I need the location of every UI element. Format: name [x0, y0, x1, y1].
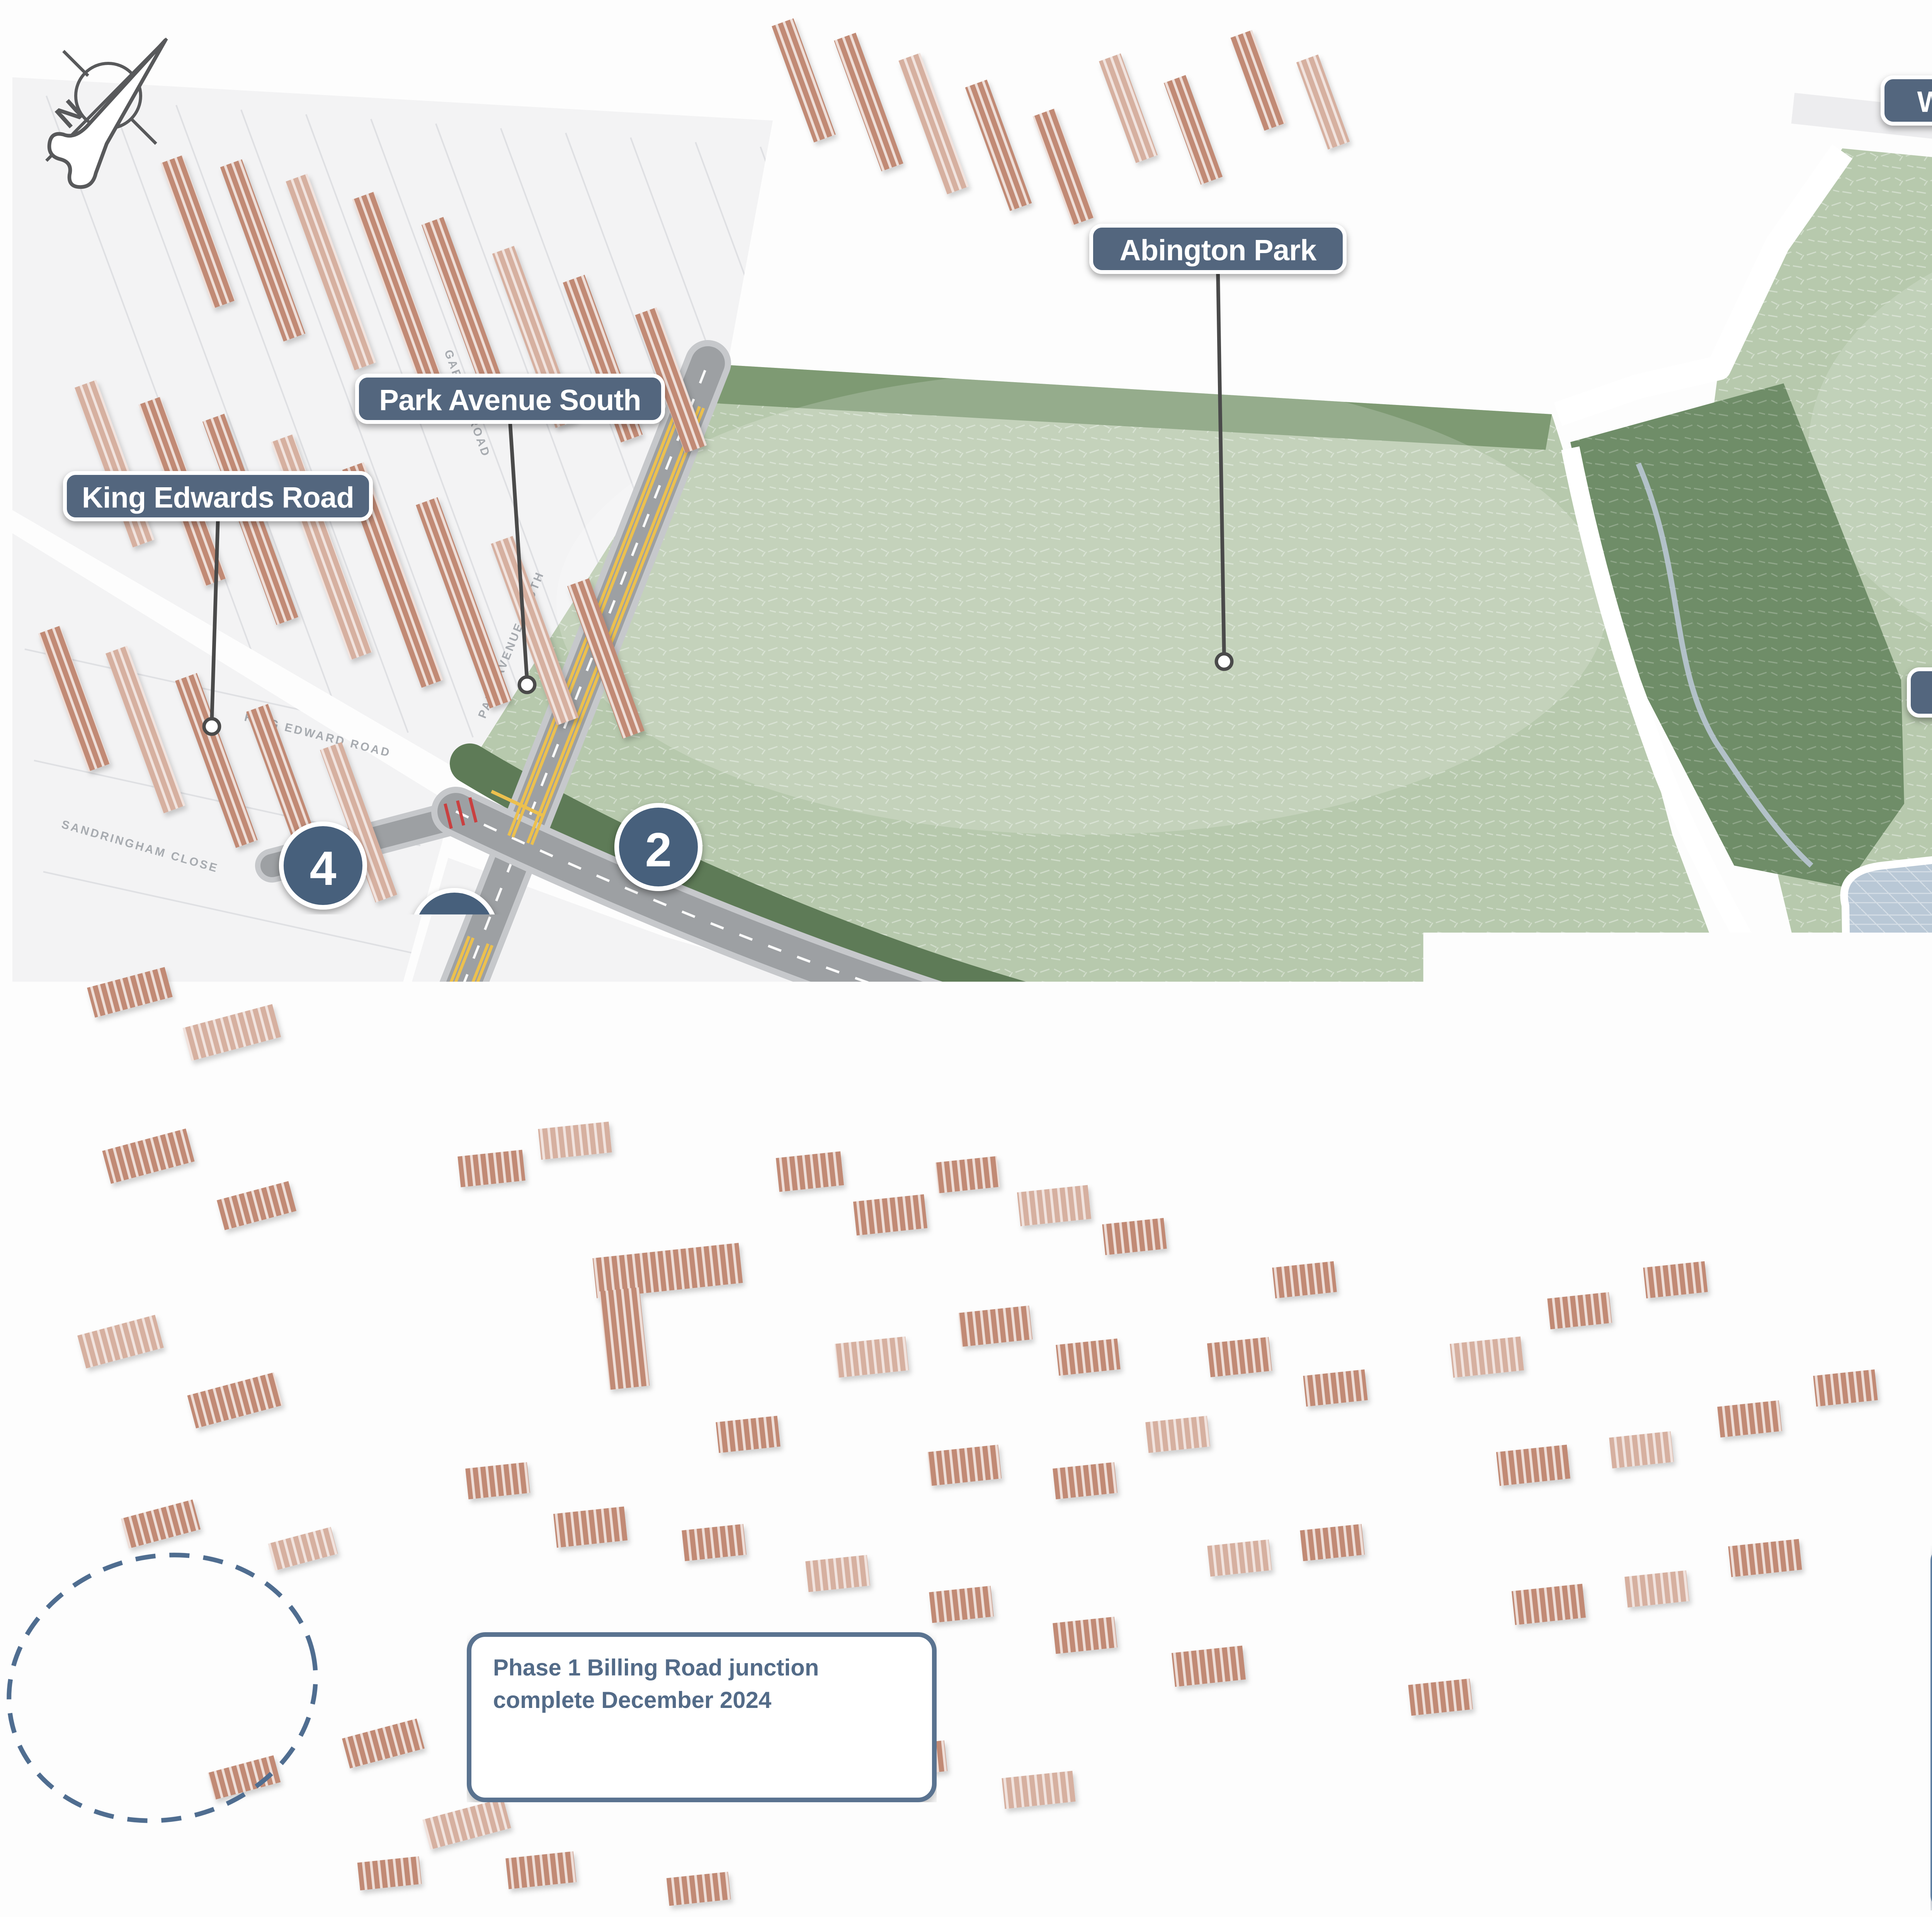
tree-icon — [1419, 1048, 1462, 1091]
building — [1303, 1369, 1367, 1407]
tree-icon — [1533, 1070, 1570, 1107]
leader-dot — [403, 1284, 419, 1300]
svg-text:King Edwards Road: King Edwards Road — [82, 481, 354, 514]
phase1-note-text: Phase 1 Billing Road junction complete D… — [493, 1655, 819, 1714]
marker-2-mid: 2 — [1334, 1002, 1417, 1085]
building — [1300, 1524, 1364, 1561]
label-park-avenue-south-bottom: Park Avenue South — [236, 1454, 543, 1501]
leader-dot — [1216, 654, 1232, 669]
building — [929, 1586, 993, 1623]
legend-box: 1.Improved and safer Toucan crossing for… — [1930, 1546, 1932, 1910]
building — [1053, 1617, 1117, 1654]
building — [1145, 1416, 1210, 1453]
building — [1408, 1679, 1473, 1716]
tree-icon — [750, 853, 796, 900]
building — [776, 1151, 844, 1192]
marker-4-west: 4 — [281, 824, 365, 907]
building — [1207, 1539, 1272, 1577]
marker-3-southwest: 3 — [170, 1196, 253, 1280]
tree-icon — [584, 785, 628, 828]
tree-icon — [1148, 992, 1176, 1020]
tree-icon — [474, 736, 515, 776]
leader-dot — [204, 719, 219, 734]
label-park-avenue-south-top: Park Avenue South — [357, 376, 663, 422]
leader-dot — [519, 677, 535, 692]
building — [1056, 1339, 1120, 1376]
svg-text:Abington Park: Abington Park — [1120, 234, 1317, 267]
marker-2-west: 2 — [617, 805, 700, 889]
svg-text:2: 2 — [1362, 1020, 1389, 1073]
marker-4-landcross: 4 — [1306, 1121, 1389, 1204]
marker-1-east: 1 — [1818, 1022, 1901, 1105]
label-king-edwards-road: King Edwards Road — [65, 473, 371, 519]
building — [1717, 1400, 1782, 1437]
tree-icon — [1195, 997, 1241, 1043]
building — [1547, 1292, 1612, 1329]
svg-text:Abington Park Crescent: Abington Park Crescent — [709, 1288, 1037, 1321]
svg-text:Wellingborough Road: Wellingborough Road — [1917, 86, 1932, 119]
building — [1624, 1570, 1689, 1607]
building — [805, 1555, 870, 1592]
tree-icon — [1258, 1019, 1289, 1050]
svg-text:1: 1 — [1846, 1040, 1873, 1093]
tree-icon — [1482, 1065, 1510, 1093]
svg-text:4: 4 — [1335, 1139, 1361, 1192]
tree-icon — [249, 1705, 280, 1736]
svg-text:3: 3 — [1067, 944, 1094, 997]
leader-dot — [175, 1699, 190, 1714]
tree-icon — [1411, 1173, 1442, 1204]
building — [1813, 1369, 1878, 1407]
tree-icon — [1866, 1101, 1906, 1141]
phase1-note-box: Phase 1 Billing Road junction complete D… — [467, 1632, 937, 1802]
marker-3-mid: 3 — [1039, 926, 1122, 1009]
svg-text:1: 1 — [441, 908, 468, 962]
marker-1-west: 1 — [413, 890, 496, 974]
park-highlight-west — [556, 371, 1607, 835]
tree-icon — [1697, 1088, 1740, 1131]
tree-icon — [1074, 388, 1090, 403]
svg-text:Park Avenue South: Park Avenue South — [379, 384, 641, 417]
label-bridgewater-drive: Bridgewater Drive — [1909, 669, 1932, 716]
tree-icon — [699, 836, 736, 873]
tree-icon — [1757, 1097, 1791, 1131]
tree-icon — [864, 898, 904, 938]
map-canvas: GARRICK ROAD KING EDWARD ROAD SANDRINGHA… — [0, 0, 1932, 1917]
tree-icon — [1811, 1099, 1849, 1136]
building — [1272, 1261, 1337, 1298]
tree-icon — [974, 935, 1017, 978]
svg-text:2: 2 — [645, 823, 672, 877]
svg-text:3: 3 — [1607, 1065, 1633, 1118]
svg-text:Park Avenue South: Park Avenue South — [259, 1463, 520, 1496]
tree-icon — [924, 923, 955, 954]
label-abington-park-crescent-west: Abington Park Crescent — [685, 1280, 1062, 1326]
tree-icon — [641, 1563, 657, 1578]
building — [1643, 1261, 1708, 1298]
legend: 1.Improved and safer Toucan crossing for… — [1930, 1546, 1932, 1910]
building — [682, 1524, 746, 1561]
tree-icon — [815, 884, 842, 912]
phase1-note: Phase 1 Billing Road junction complete D… — [467, 1632, 937, 1802]
tree-icon — [536, 768, 564, 796]
marker-3-east: 3 — [1578, 1046, 1662, 1130]
label-wellingborough-road: Wellingborough Road — [1883, 77, 1932, 124]
svg-text:3: 3 — [199, 1214, 225, 1268]
estate-zone — [1430, 1119, 1932, 1917]
tree-icon — [342, 1761, 366, 1785]
leader-dot — [825, 1085, 841, 1101]
building — [1102, 1218, 1167, 1255]
building — [1053, 1462, 1117, 1499]
building — [1609, 1431, 1673, 1468]
label-abington-park: Abington Park — [1091, 226, 1345, 272]
leader-dot — [1423, 1294, 1439, 1309]
building — [1207, 1337, 1272, 1377]
svg-text:Landcross Drive: Landcross Drive — [1263, 1644, 1488, 1677]
svg-text:4: 4 — [310, 842, 337, 895]
label-landcross-drive: Landcross Drive — [1238, 1635, 1513, 1682]
tree-icon — [383, 910, 396, 923]
tree-icon — [439, 1883, 467, 1910]
building — [935, 1156, 1000, 1193]
building — [716, 1416, 780, 1453]
tree-icon — [1167, 858, 1182, 873]
